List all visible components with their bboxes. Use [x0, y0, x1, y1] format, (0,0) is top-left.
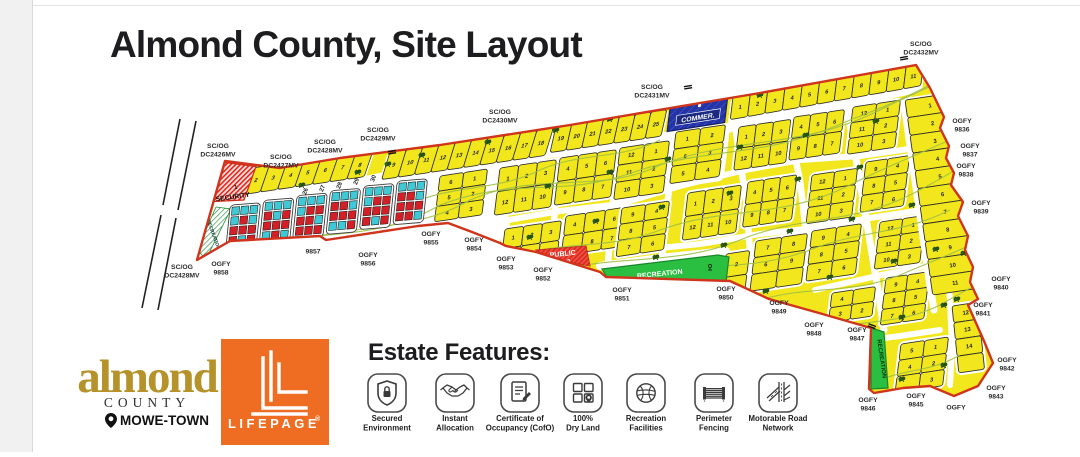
svg-text:OGFY: OGFY [973, 302, 993, 309]
svg-text:9841: 9841 [975, 311, 990, 318]
svg-text:9858: 9858 [213, 270, 228, 277]
svg-text:OGFY: OGFY [612, 287, 632, 294]
svg-text:Dry Land: Dry Land [566, 424, 600, 433]
svg-text:OGFY: OGFY [952, 118, 972, 125]
svg-text:®: ® [315, 415, 321, 423]
svg-text:9853: 9853 [498, 265, 513, 272]
svg-text:9846: 9846 [860, 406, 875, 413]
svg-text:OGFY: OGFY [946, 404, 966, 411]
svg-text:12: 12 [501, 200, 508, 207]
svg-text:OGFY: OGFY [358, 252, 378, 259]
svg-text:100%: 100% [573, 414, 593, 423]
svg-text:OGFY: OGFY [971, 200, 991, 207]
svg-text:OGFY: OGFY [496, 256, 516, 263]
svg-text:SC/OG: SC/OG [207, 143, 229, 150]
svg-text:SC/OG: SC/OG [367, 127, 389, 134]
svg-text:Secured: Secured [372, 414, 403, 423]
svg-text:10: 10 [623, 187, 630, 194]
svg-text:Almond County, Site Layout: Almond County, Site Layout [110, 24, 582, 65]
svg-text:LIFEPAGE: LIFEPAGE [228, 416, 320, 431]
svg-text:9840: 9840 [993, 285, 1008, 292]
svg-text:10: 10 [539, 194, 546, 201]
svg-text:12: 12 [819, 179, 826, 186]
svg-text:12: 12 [740, 156, 747, 163]
svg-text:9849: 9849 [771, 309, 786, 316]
svg-text:Certificate of: Certificate of [496, 414, 544, 423]
svg-text:OGFY: OGFY [804, 322, 824, 329]
svg-text:9850: 9850 [718, 295, 733, 302]
svg-text:Motorable Road: Motorable Road [749, 414, 808, 423]
svg-text:OGFY: OGFY [421, 231, 441, 238]
svg-text:9848: 9848 [806, 331, 821, 338]
svg-text:DC2427MV: DC2427MV [263, 163, 299, 170]
svg-text:10: 10 [949, 263, 956, 270]
svg-text:10: 10 [856, 142, 863, 149]
svg-text:Facilities: Facilities [629, 424, 663, 433]
svg-text:9839: 9839 [973, 209, 988, 216]
svg-text:DC2428MV: DC2428MV [164, 273, 200, 280]
svg-text:SC/OG: SC/OG [641, 84, 663, 91]
svg-text:10: 10 [815, 212, 822, 219]
svg-text:OGFY: OGFY [847, 327, 867, 334]
svg-text:9854: 9854 [466, 246, 481, 253]
svg-text:OGFY: OGFY [986, 385, 1006, 392]
svg-text:COUNTY: COUNTY [104, 395, 190, 410]
svg-text:SC/OG: SC/OG [270, 154, 292, 161]
svg-text:DC2428MV: DC2428MV [307, 148, 343, 155]
svg-text:OGFY: OGFY [997, 357, 1017, 364]
svg-text:Estate Features:: Estate Features: [368, 339, 550, 366]
svg-text:9836: 9836 [954, 127, 969, 134]
svg-text:10: 10 [775, 151, 782, 158]
svg-text:9852: 9852 [535, 276, 550, 283]
svg-text:Recreation: Recreation [626, 414, 667, 423]
svg-text:10: 10 [883, 257, 890, 264]
svg-text:SC/OG: SC/OG [171, 264, 193, 271]
svg-text:OGFY: OGFY [716, 286, 736, 293]
svg-text:DC2431MV: DC2431MV [634, 93, 670, 100]
svg-text:9857: 9857 [305, 248, 320, 255]
svg-text:9855: 9855 [423, 240, 438, 247]
svg-text:SC/OG: SC/OG [489, 109, 511, 116]
svg-text:9845: 9845 [908, 402, 923, 409]
svg-text:9856: 9856 [360, 261, 375, 268]
svg-text:12: 12 [689, 225, 696, 232]
svg-text:9847: 9847 [849, 336, 864, 343]
svg-text:Environment: Environment [363, 424, 411, 433]
svg-text:DC2430MV: DC2430MV [482, 118, 518, 125]
svg-text:Occupancy (CofO): Occupancy (CofO) [486, 424, 555, 433]
svg-text:Perimeter: Perimeter [696, 414, 732, 423]
svg-text:OGFY: OGFY [956, 163, 976, 170]
svg-text:DC2432MV: DC2432MV [903, 50, 939, 57]
svg-text:OGFY: OGFY [960, 143, 980, 150]
svg-text:OGFY: OGFY [991, 276, 1011, 283]
svg-text:9842: 9842 [999, 366, 1014, 373]
svg-text:12: 12 [962, 310, 969, 317]
svg-text:OGFY: OGFY [464, 237, 484, 244]
svg-text:13: 13 [964, 327, 971, 334]
svg-text:DC2426MV: DC2426MV [200, 152, 236, 159]
svg-text:10: 10 [725, 220, 732, 227]
svg-text:SC/OG: SC/OG [910, 41, 932, 48]
svg-text:Fencing: Fencing [699, 424, 729, 433]
svg-text:DC2429MV: DC2429MV [360, 136, 396, 143]
svg-text:9837: 9837 [962, 152, 977, 159]
svg-text:Allocation: Allocation [436, 424, 474, 433]
svg-text:9838: 9838 [958, 172, 973, 179]
svg-text:OGFY: OGFY [533, 267, 553, 274]
svg-text:SC/OG: SC/OG [314, 139, 336, 146]
svg-text:Network: Network [763, 424, 794, 433]
svg-text:12: 12 [628, 152, 635, 159]
svg-text:OGFY: OGFY [906, 393, 926, 400]
svg-text:Instant: Instant [442, 414, 468, 423]
svg-text:OGFY: OGFY [211, 261, 231, 268]
svg-text:MOWE-TOWN: MOWE-TOWN [120, 413, 209, 428]
svg-text:9843: 9843 [988, 394, 1003, 401]
svg-text:9851: 9851 [614, 296, 629, 303]
svg-text:OGFY: OGFY [858, 397, 878, 404]
svg-text:OGFY: OGFY [769, 300, 789, 307]
